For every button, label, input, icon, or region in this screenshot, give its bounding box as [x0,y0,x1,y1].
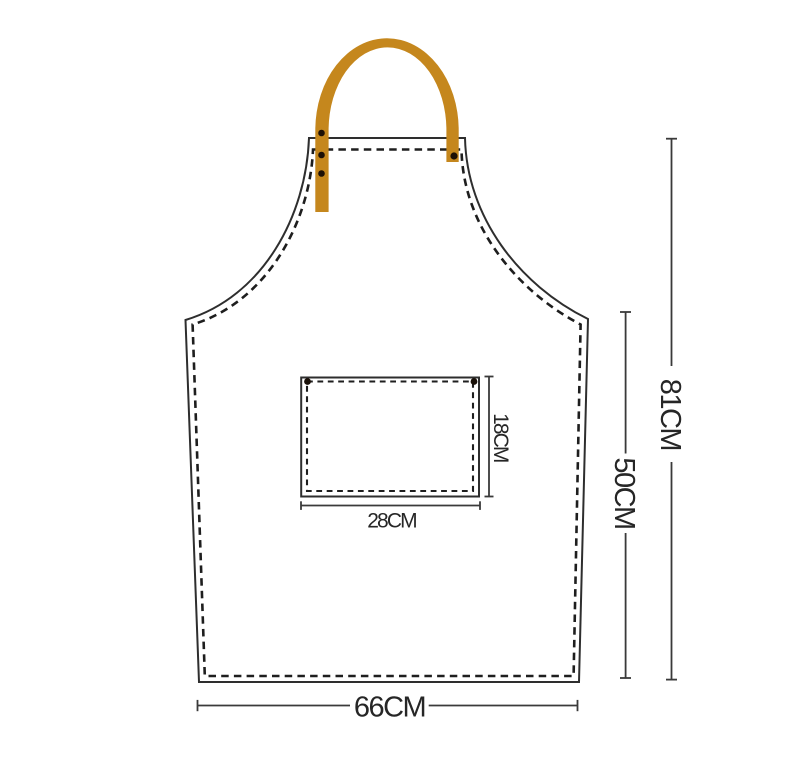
svg-text:66CM: 66CM [354,692,425,724]
svg-text:50CM: 50CM [608,457,640,528]
svg-text:81CM: 81CM [654,379,686,450]
svg-text:28CM: 28CM [367,510,416,533]
svg-text:18CM: 18CM [489,413,512,462]
